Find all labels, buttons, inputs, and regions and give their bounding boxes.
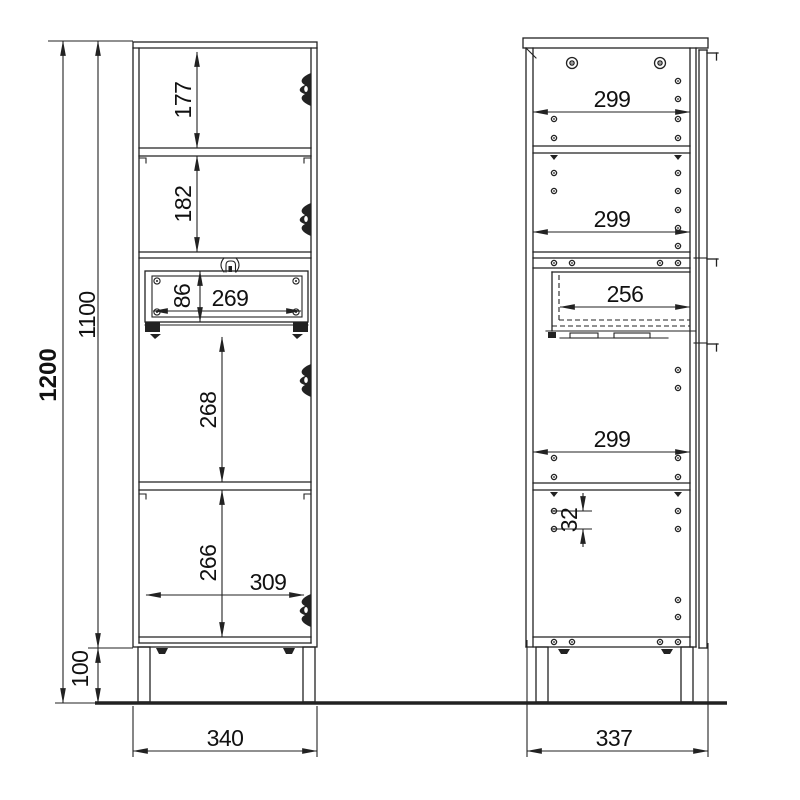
- carcass-side: [523, 38, 708, 647]
- dim-compartment-3-label: 268: [195, 392, 221, 429]
- dim-drawer-width-label: 269: [212, 285, 249, 311]
- dim-leg-height-label: 100: [67, 651, 93, 688]
- dim-compartment-2-label: 182: [170, 186, 196, 223]
- camlock-fitting-icons: [567, 58, 666, 69]
- dim-overall-width-label: 340: [207, 725, 244, 751]
- dim-interior-width-label: 309: [250, 569, 287, 595]
- dim-hole-spacing-label: 32: [556, 508, 582, 533]
- technical-drawing-page: 1200 1100 100 177 182 86 268 266 269 309…: [0, 0, 800, 800]
- dim-shelf-depth-top-label: 299: [594, 86, 631, 112]
- shelves-front: [139, 148, 311, 499]
- legs-side: [536, 647, 693, 702]
- shelf-clip-icon: [139, 494, 311, 499]
- door-edge-side: [694, 50, 718, 648]
- hinge-hook-icon: [694, 258, 718, 266]
- dim-drawer-depth-label: 256: [607, 281, 644, 307]
- hinge-hook-icon: [707, 53, 718, 60]
- legs-front: [138, 647, 315, 702]
- front-view: 1200 1100 100 177 182 86 268 266 269 309…: [35, 41, 317, 757]
- dim-shelf-depth-middle-label: 299: [594, 206, 631, 232]
- dim-compartment-4-label: 266: [195, 545, 221, 582]
- drawer-slide-icon: [145, 322, 308, 339]
- shelf-clip-icon: [139, 158, 311, 163]
- dim-compartment-1-label: 177: [170, 82, 196, 119]
- dim-drawer-height-label: 86: [169, 284, 195, 309]
- drawer-handle-icon: [221, 258, 239, 272]
- cabinet-technical-drawing: 1200 1100 100 177 182 86 268 266 269 309…: [0, 0, 800, 800]
- dim-carcass-height-label: 1100: [74, 291, 100, 338]
- carcass-front: [133, 42, 317, 647]
- dim-overall-height-label: 1200: [35, 348, 62, 401]
- dim-shelf-depth-bottom-label: 299: [594, 426, 631, 452]
- drawer-runner-icon: [546, 331, 696, 338]
- dim-side-overall-width-label: 337: [596, 725, 633, 751]
- side-view: 299 299 256 299 32 337: [523, 38, 718, 757]
- hinge-hook-icon: [694, 343, 718, 351]
